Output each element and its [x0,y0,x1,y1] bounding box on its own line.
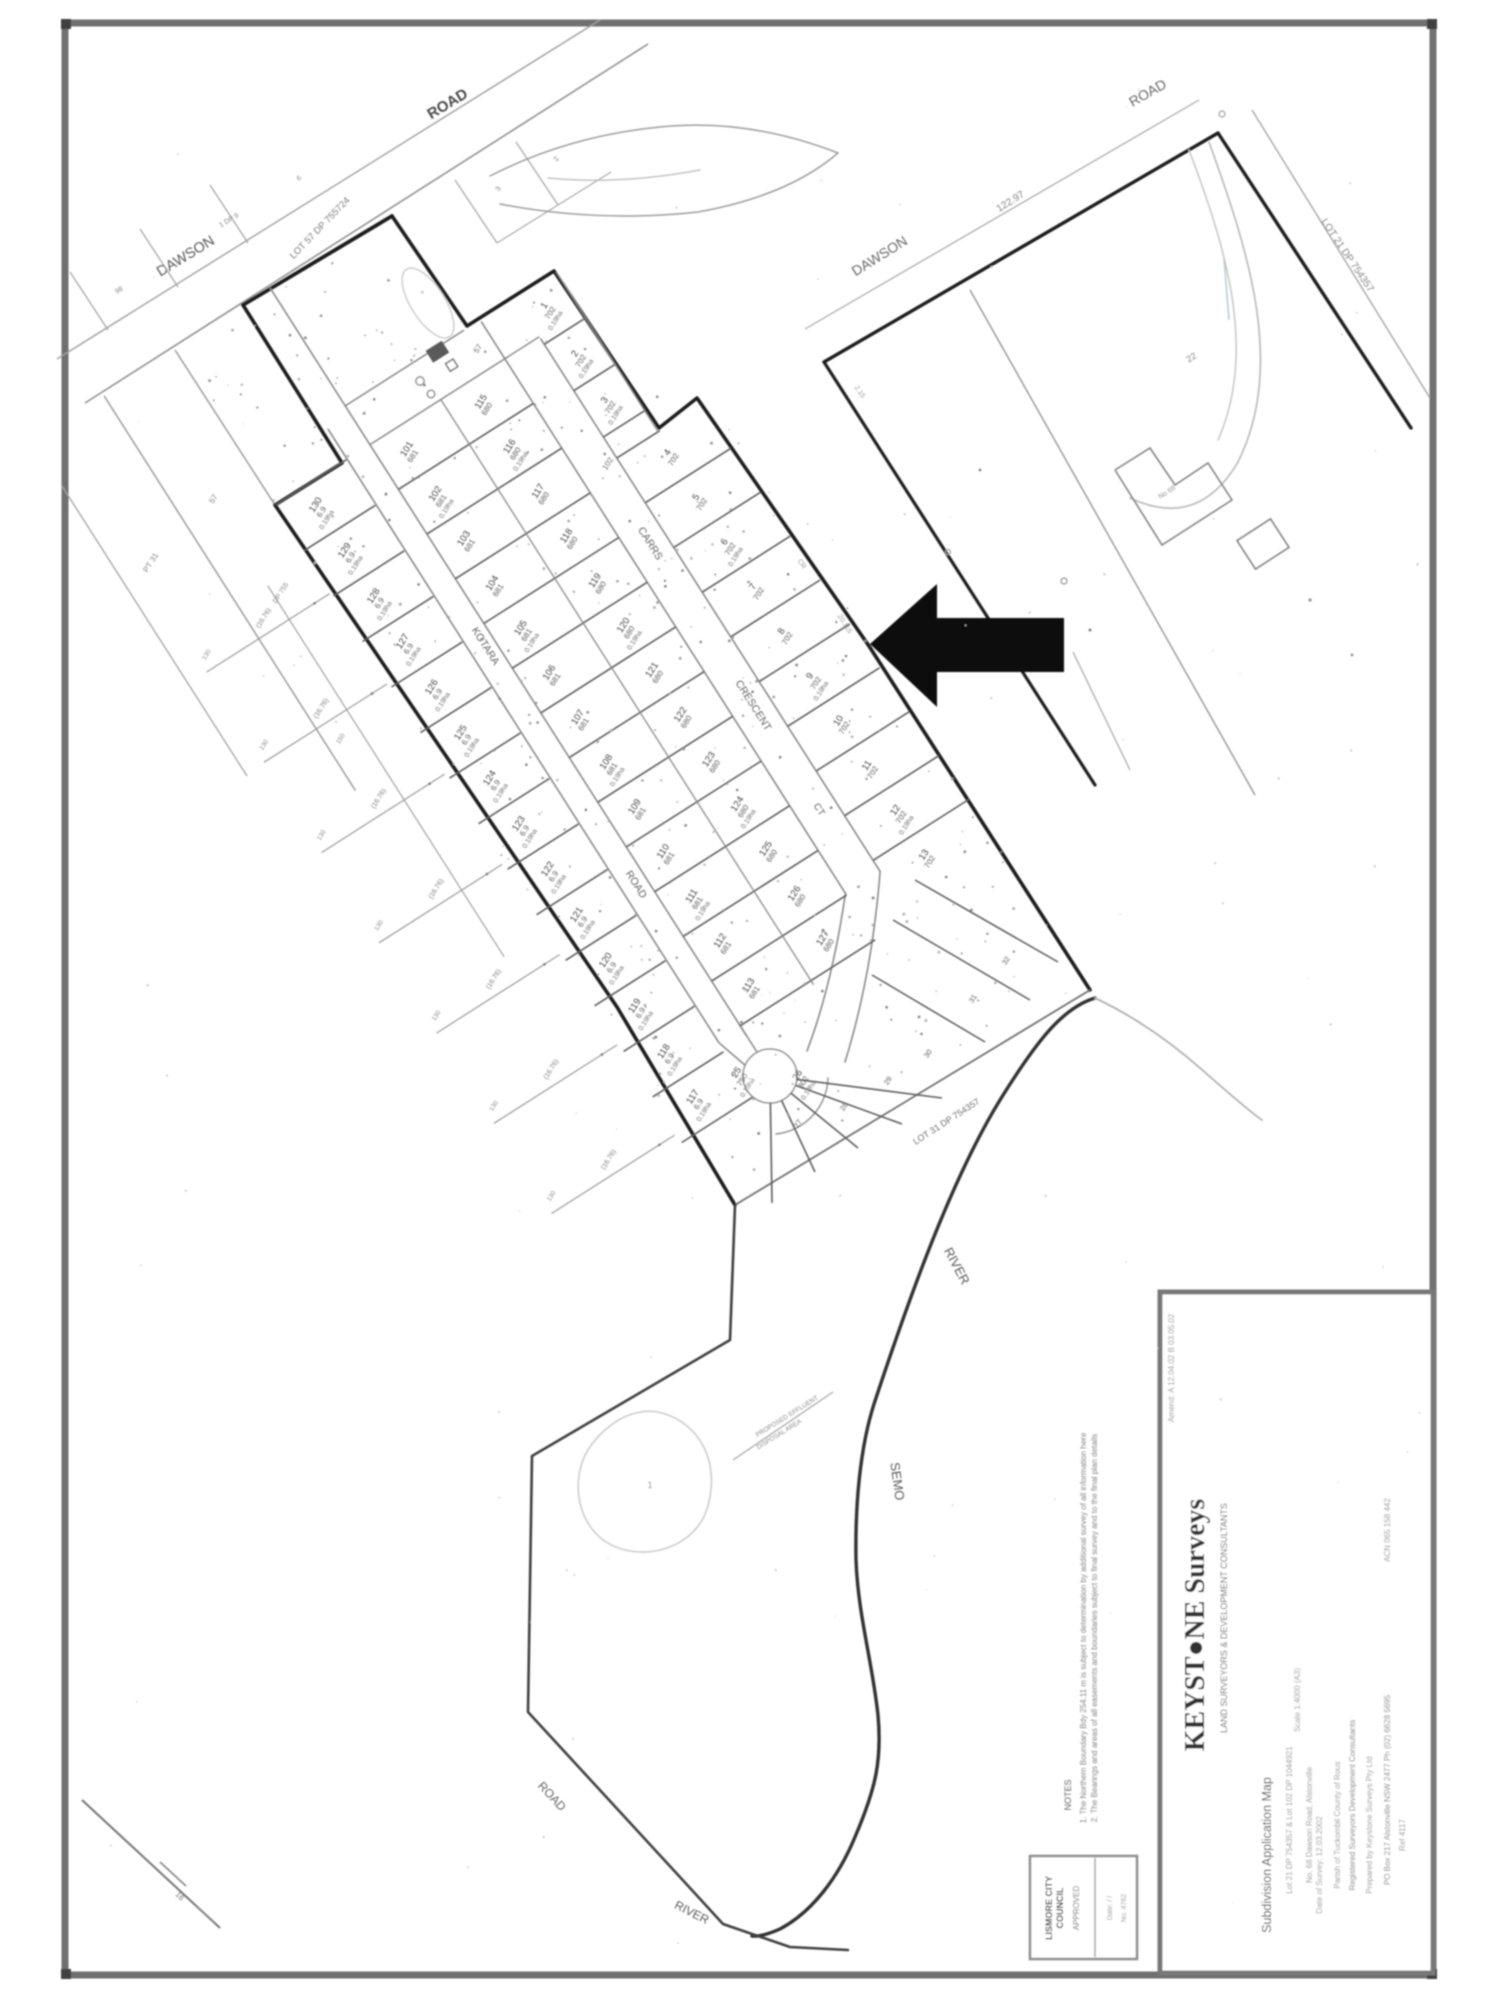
svg-text:PO Box 217 Alstonville NSW 247: PO Box 217 Alstonville NSW 2477 Ph (02) … [1383,1694,1392,1885]
svg-text:1. The Northern Boundary Bdy 2: 1. The Northern Boundary Bdy 254.11 m is… [1079,1432,1088,1823]
svg-text:Date: / /: Date: / / [1107,1896,1114,1921]
svg-text:KEYST●NE Surveys: KEYST●NE Surveys [1180,1499,1211,1752]
svg-text:Amend: A 12.04.02 B 03.05.02: Amend: A 12.04.02 B 03.05.02 [1167,1313,1176,1422]
svg-text:No. 4762: No. 4762 [1121,1894,1128,1923]
svg-text:Scale 1:4000 (A3): Scale 1:4000 (A3) [1293,1668,1302,1732]
svg-text:Lot 21 DP 754357 & Lot 102 DP: Lot 21 DP 754357 & Lot 102 DP 1044921 [1285,1746,1294,1894]
svg-text:Date of Survey: 12.03.2002: Date of Survey: 12.03.2002 [1315,1816,1324,1914]
svg-text:1: 1 [647,1480,652,1490]
svg-text:Registered Surveyors Develop: Registered Surveyors Development Consult… [1348,1720,1357,1891]
svg-text:No. 68 Dawson Road, Alstonvill: No. 68 Dawson Road, Alstonville [1305,1766,1314,1883]
svg-text:2. The Bearings and areas of a: 2. The Bearings and areas of all easemen… [1090,1434,1099,1823]
svg-text:Prepared by Keystone Surveys P: Prepared by Keystone Surveys Pty Ltd [1365,1756,1374,1893]
svg-text:ACN 065 158 442: ACN 065 158 442 [1383,1498,1392,1562]
svg-text:NOTES: NOTES [1063,1779,1073,1810]
svg-text:COUNCIL: COUNCIL [1055,1887,1065,1928]
svg-text:LISMORE CITY: LISMORE CITY [1044,1876,1054,1940]
svg-text:Ref 4117: Ref 4117 [1398,1819,1407,1851]
svg-text:Subdivision Application Map: Subdivision Application Map [1260,1777,1274,1933]
svg-text:Parish of Tuckombil County: Parish of Tuckombil County of Rous [1333,1761,1342,1888]
svg-text:APPROVED: APPROVED [1072,1886,1081,1931]
svg-text:LAND SURVEYORS & DEVELOPMENT C: LAND SURVEYORS & DEVELOPMENT CONSULTANTS [1219,1503,1229,1733]
